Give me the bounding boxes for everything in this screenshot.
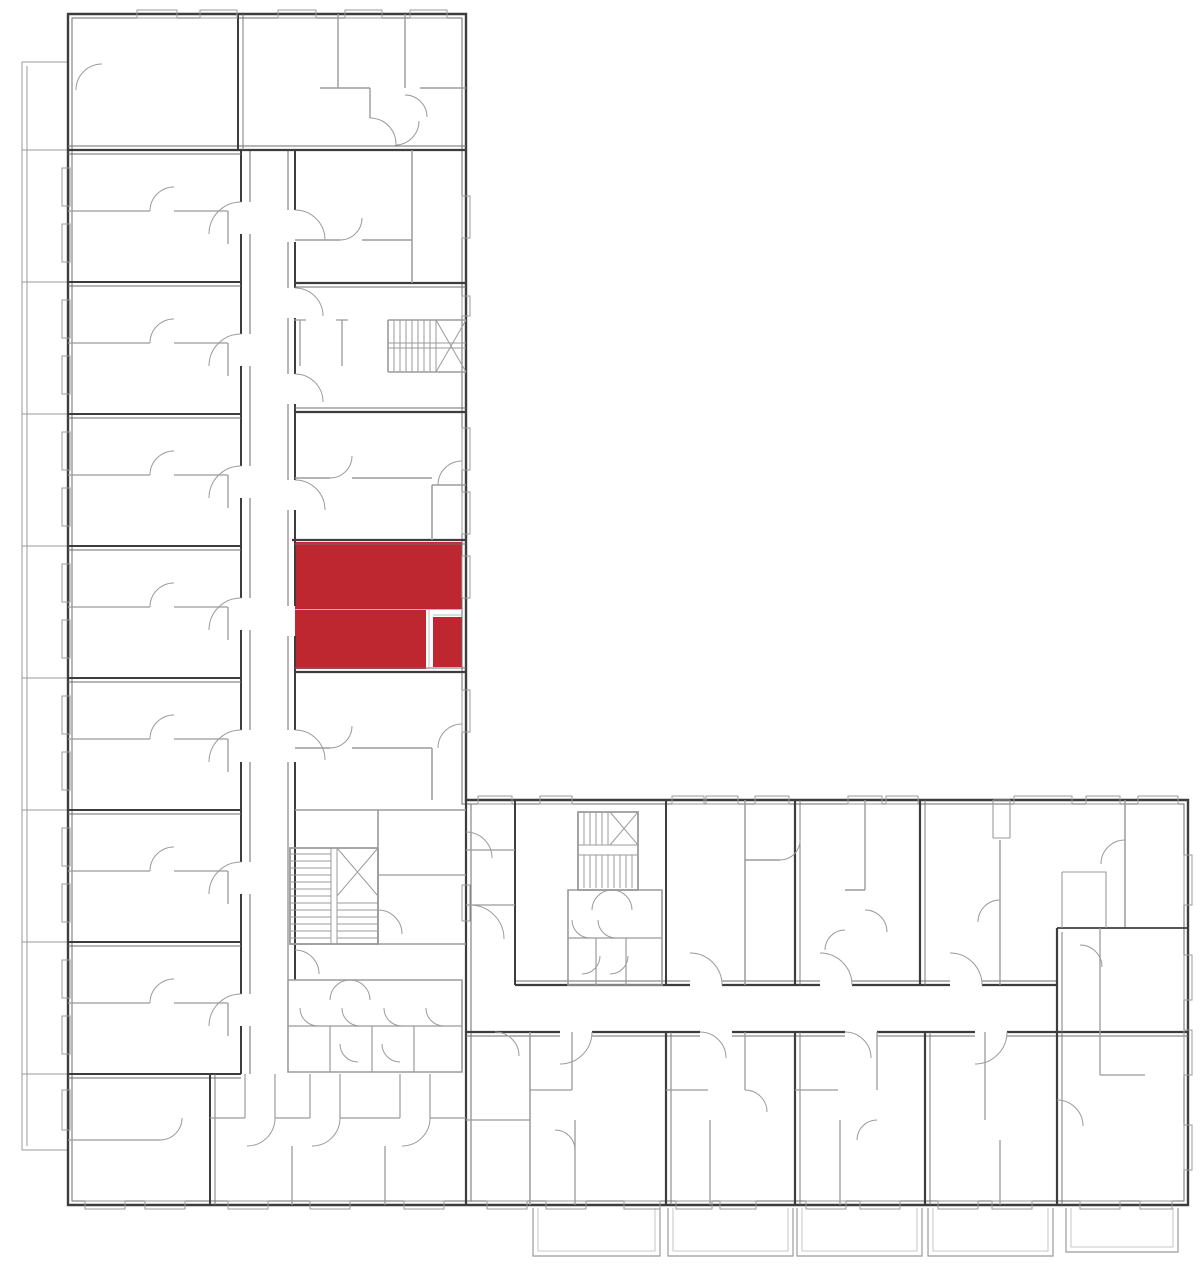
highlighted-unit-area[interactable] bbox=[295, 610, 426, 669]
floor-plan-page bbox=[0, 0, 1200, 1270]
highlighted-unit[interactable] bbox=[295, 542, 462, 669]
highlighted-unit-area[interactable] bbox=[295, 542, 462, 609]
floor-plan-svg bbox=[0, 0, 1200, 1270]
plan-background bbox=[0, 0, 1200, 1270]
highlighted-unit-area[interactable] bbox=[433, 617, 462, 667]
